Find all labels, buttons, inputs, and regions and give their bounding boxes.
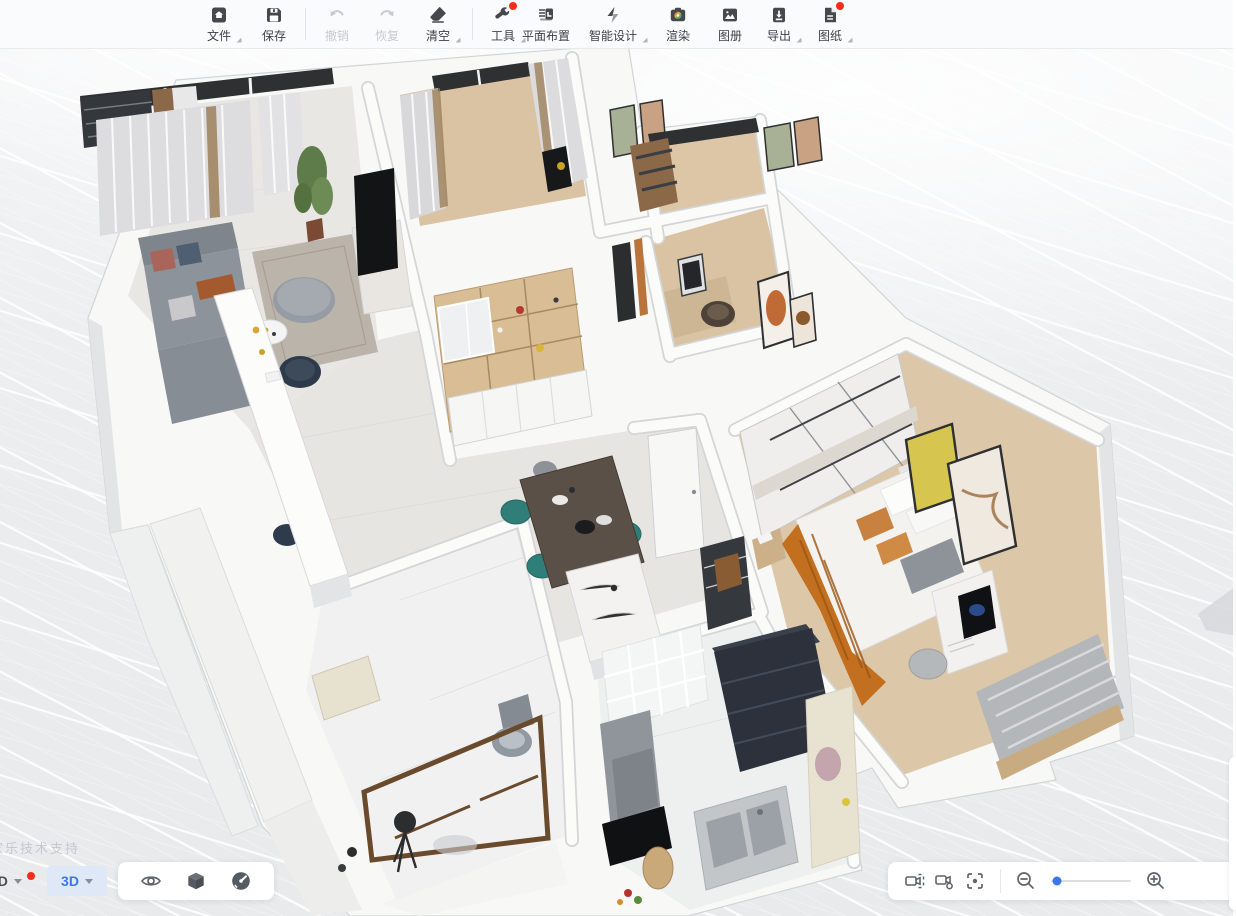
toolbar-file-button[interactable]: 文件 <box>203 3 235 45</box>
toolbar-label: 保存 <box>262 27 286 44</box>
gauge-icon <box>230 870 252 892</box>
sofa-pillow <box>176 242 202 266</box>
visibility-eye-button[interactable] <box>136 866 166 896</box>
pink-basin <box>815 747 841 781</box>
toolbar-label: 撤销 <box>325 27 349 44</box>
toolbar-undo-button[interactable]: 撤销 <box>321 3 353 45</box>
chevron-down-icon <box>85 879 93 884</box>
cutting-board <box>643 847 673 889</box>
faucet <box>757 809 763 815</box>
toolbar-label: 渲染 <box>666 27 690 44</box>
notification-badge <box>509 2 517 10</box>
album-icon <box>719 4 741 26</box>
camera-settings-icon <box>933 869 957 893</box>
toolbar-label: 图纸 <box>818 27 842 44</box>
chevron-down-icon <box>14 879 22 884</box>
toolbar-clear-button[interactable]: 清空 <box>422 3 454 45</box>
sofa-pillow <box>150 248 176 272</box>
floorplan-layout-icon <box>535 4 557 26</box>
toolbar-smart-design-button[interactable]: 智能设计 <box>585 3 641 45</box>
zoom-slider-thumb[interactable] <box>1052 877 1061 886</box>
eraser-icon <box>427 4 449 26</box>
toolbar-label: 图册 <box>718 27 742 44</box>
wall-picture <box>794 117 822 165</box>
performance-gauge-button[interactable] <box>226 866 256 896</box>
panel-divider <box>1000 869 1001 893</box>
toolbar-separator <box>472 8 473 40</box>
view-mode-2d-label: 2D <box>0 873 8 889</box>
wrench-icon <box>492 4 514 26</box>
undo-icon <box>326 4 348 26</box>
view-mode-2d-button[interactable]: 2D <box>0 866 43 896</box>
toolbar-save-button[interactable]: 保存 <box>258 3 290 45</box>
toolbar-floorplan-layout-button[interactable]: 平面布置 <box>518 3 574 45</box>
cube-icon <box>185 870 207 892</box>
caret-icon <box>456 38 461 43</box>
caret-icon <box>643 38 648 43</box>
toolbar-label: 清空 <box>426 27 450 44</box>
tripod-lamp <box>394 811 416 833</box>
toolbar-label: 导出 <box>767 27 791 44</box>
collapsed-side-panel-edge[interactable] <box>1229 757 1236 910</box>
black-bowl <box>575 520 595 534</box>
export-icon <box>768 4 790 26</box>
toolbar-render-button[interactable]: 渲染 <box>662 3 694 45</box>
view-mode-3d-label: 3D <box>61 873 79 889</box>
toolbar-separator <box>305 8 306 40</box>
caret-icon <box>848 38 853 43</box>
eye-icon <box>139 869 163 893</box>
plant-pot <box>306 218 324 242</box>
caret-icon <box>237 38 242 43</box>
toolbar-label: 智能设计 <box>589 27 637 44</box>
toolbar-label: 平面布置 <box>522 27 570 44</box>
toolbar-label: 文件 <box>207 27 231 44</box>
notification-badge <box>27 872 35 880</box>
camera-zoom-panel <box>888 862 1236 900</box>
view-mode-3d-button[interactable]: 3D <box>47 866 107 896</box>
render-camera-icon <box>667 4 689 26</box>
faucet <box>611 585 617 591</box>
top-toolbar: 文件 保存 撤销 恢复 清空 工具 <box>0 0 1236 49</box>
redo-icon <box>376 4 398 26</box>
zoom-out-icon <box>1014 869 1038 893</box>
drawings-icon <box>819 4 841 26</box>
toolbar-tools-button[interactable]: 工具 <box>487 3 519 45</box>
toolbar-drawings-button[interactable]: 图纸 <box>814 3 846 45</box>
smart-design-icon <box>602 4 624 26</box>
camera-view-button[interactable] <box>900 866 930 896</box>
toolbar-label: 工具 <box>491 27 515 44</box>
curtain-left <box>96 100 254 236</box>
floorplan-3d-viewport[interactable] <box>0 0 1236 916</box>
hall-cabinet <box>434 268 592 446</box>
camera-settings-button[interactable] <box>930 866 960 896</box>
solid-cube-button[interactable] <box>181 866 211 896</box>
toolbar-redo-button[interactable]: 恢复 <box>371 3 403 45</box>
focus-center-icon <box>963 869 987 893</box>
toolbar-export-button[interactable]: 导出 <box>763 3 795 45</box>
desk-chair <box>909 649 947 679</box>
zoom-in-button[interactable] <box>1141 866 1171 896</box>
toolbar-album-button[interactable]: 图册 <box>714 3 746 45</box>
notification-badge <box>836 2 844 10</box>
zoom-slider-track[interactable] <box>1051 880 1131 882</box>
zoom-in-icon <box>1144 869 1168 893</box>
caret-icon <box>797 38 802 43</box>
camera-view-icon <box>903 869 927 893</box>
zoom-slider[interactable] <box>1051 866 1131 896</box>
focus-center-button[interactable] <box>960 866 990 896</box>
toolbar-label: 恢复 <box>375 27 399 44</box>
zoom-out-button[interactable] <box>1011 866 1041 896</box>
wall-picture <box>764 123 794 171</box>
file-icon <box>208 4 230 26</box>
tv <box>354 168 398 276</box>
viewport-display-panel <box>118 862 274 900</box>
save-icon <box>263 4 285 26</box>
